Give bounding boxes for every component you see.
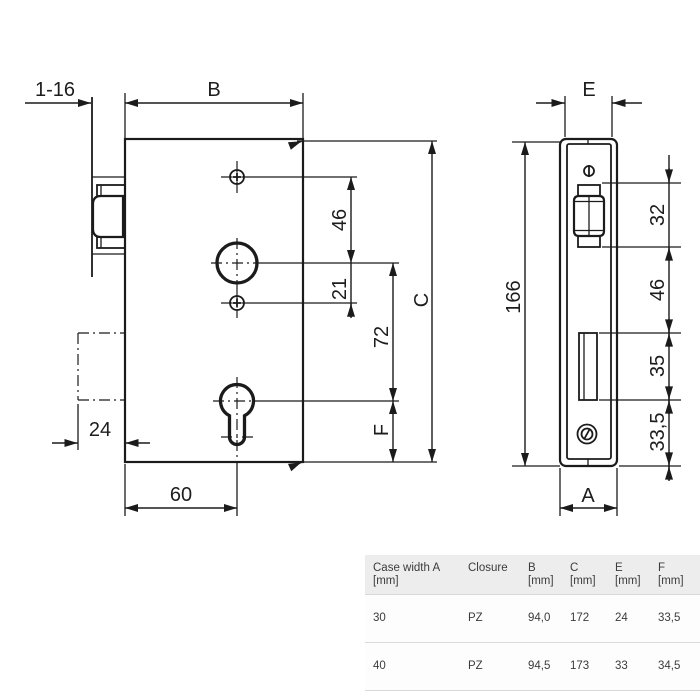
side-view: E 166 32 46 35 33,5 (503, 79, 681, 516)
header-closure: Closure (468, 555, 528, 595)
deadbolt-opening (579, 333, 597, 400)
cell-case-width: 30 (365, 595, 468, 643)
header-closure-line1: Closure (468, 562, 526, 575)
front-dimensions: 1-16 B C 46 21 (25, 79, 437, 516)
cell-closure: PZ (468, 595, 528, 643)
dim-label-a: A (581, 485, 595, 507)
header-b-unit: [mm] (528, 575, 568, 588)
header-f-unit: [mm] (658, 575, 698, 588)
dim-label-24: 24 (89, 419, 111, 441)
dim-label-nose: 1-16 (35, 79, 75, 101)
dim-label-166: 166 (503, 280, 525, 313)
faceplate-screw-top (584, 165, 594, 177)
spec-table: Case width A [mm] Closure B [mm] C [mm] … (365, 555, 700, 691)
dim-label-32: 32 (647, 204, 669, 226)
cylinder-hole (213, 377, 262, 462)
dim-label-72: 72 (371, 326, 393, 348)
screw-hole-top (221, 161, 250, 193)
latch-bolt-front (92, 97, 125, 277)
lock-technical-drawing-page: 1-16 B C 46 21 (0, 0, 700, 700)
hidden-detail-box (78, 333, 125, 400)
header-b-line1: B (528, 562, 568, 575)
cell-f: 33,5 (658, 595, 700, 643)
dim-label-height-c: C (411, 293, 433, 307)
cell-closure: PZ (468, 643, 528, 691)
dim-label-46-front: 46 (329, 209, 351, 231)
cell-e: 33 (615, 643, 658, 691)
cell-e: 24 (615, 595, 658, 643)
cell-case-width: 40 (365, 643, 468, 691)
latch-bolt-side (574, 185, 604, 247)
header-e: E [mm] (615, 555, 658, 595)
header-e-unit: [mm] (615, 575, 656, 588)
lock-case-outline (125, 139, 303, 462)
dim-label-46-side: 46 (647, 279, 669, 301)
dim-label-21: 21 (329, 278, 351, 300)
screw-hole-lower (221, 289, 250, 318)
faceplate-outline (560, 139, 617, 466)
header-c-line1: C (570, 562, 613, 575)
table-row: 40 PZ 94,5 173 33 34,5 (365, 643, 700, 691)
header-c-unit: [mm] (570, 575, 613, 588)
header-f: F [mm] (658, 555, 700, 595)
cell-c: 173 (570, 643, 615, 691)
cell-c: 172 (570, 595, 615, 643)
header-c: C [mm] (570, 555, 615, 595)
dim-label-60: 60 (170, 484, 192, 506)
dim-label-35: 35 (647, 355, 669, 377)
header-e-line1: E (615, 562, 656, 575)
dim-label-f: F (371, 424, 393, 436)
dim-label-33-5: 33,5 (647, 413, 669, 452)
cell-b: 94,5 (528, 643, 570, 691)
cell-b: 94,0 (528, 595, 570, 643)
faceplate-screw-bottom (578, 425, 597, 444)
table-row: 30 PZ 94,0 172 24 33,5 (365, 595, 700, 643)
dim-label-depth-b: B (207, 79, 220, 101)
header-b: B [mm] (528, 555, 570, 595)
header-case-width-a: Case width A [mm] (365, 555, 468, 595)
front-view: 1-16 B C 46 21 (25, 79, 437, 516)
spindle-hole (211, 238, 262, 289)
header-case-width-a-line1: Case width A (373, 562, 466, 575)
header-f-line1: F (658, 562, 698, 575)
dim-label-e: E (582, 79, 595, 101)
spec-table-header-row: Case width A [mm] Closure B [mm] C [mm] … (365, 555, 700, 595)
cell-f: 34,5 (658, 643, 700, 691)
header-case-width-a-unit: [mm] (373, 575, 466, 588)
